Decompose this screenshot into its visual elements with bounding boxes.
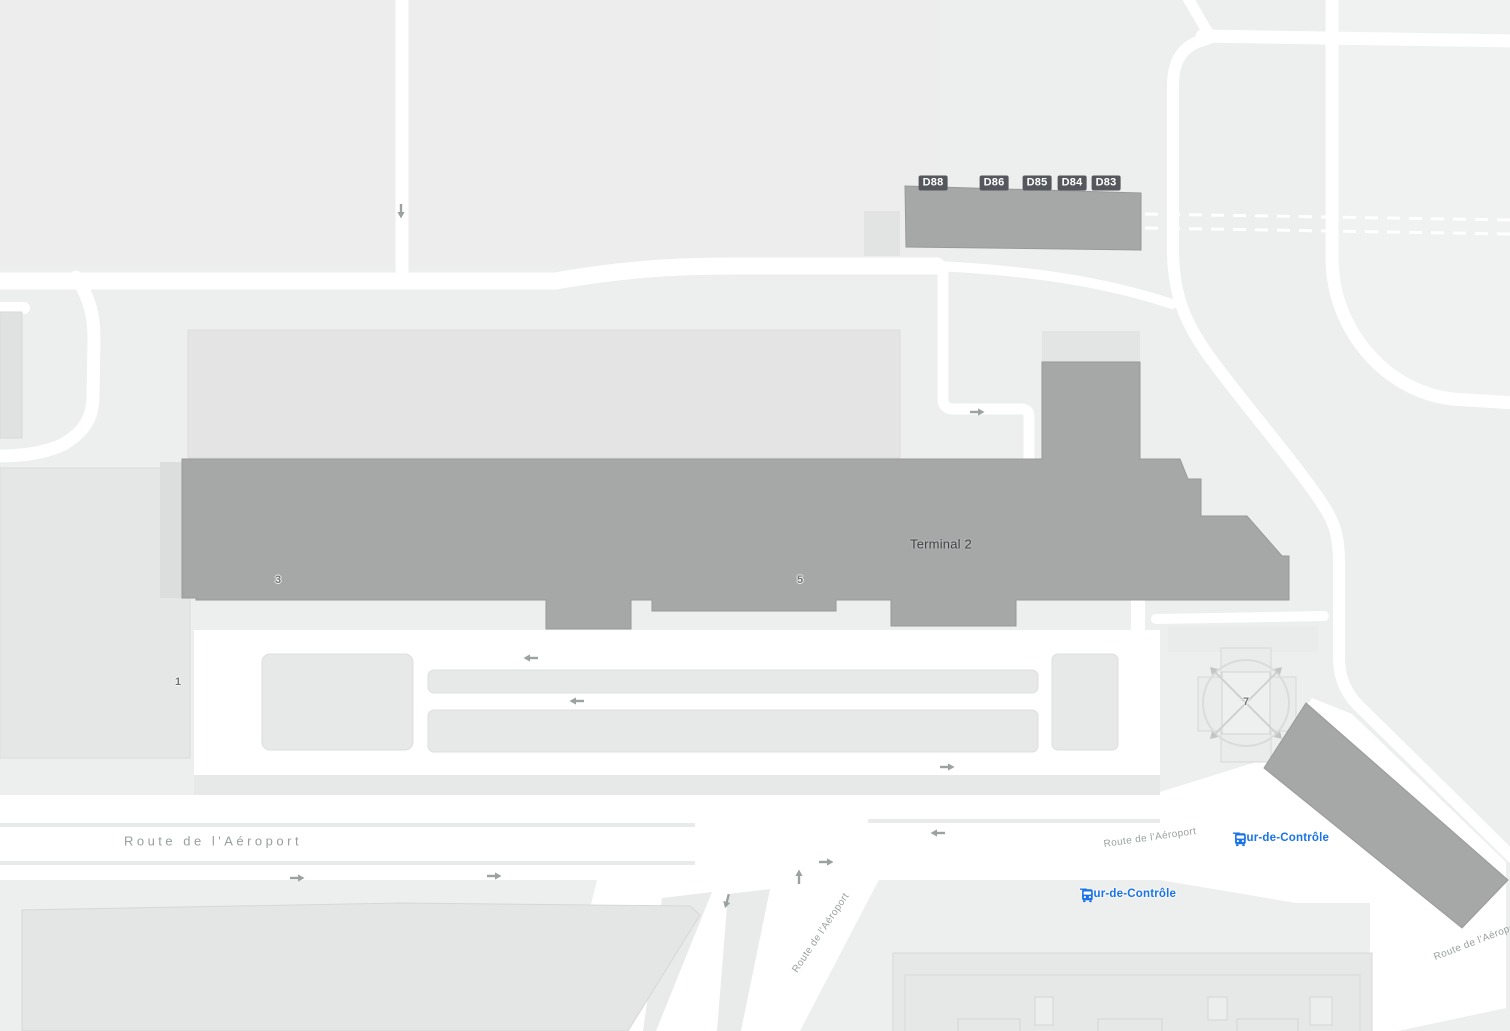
gate-label-d84[interactable]: D84 <box>1058 176 1087 191</box>
gate-label-d85[interactable]: D85 <box>1023 176 1052 191</box>
transit-stop-tour-de-controle-2[interactable]: Tour-de-Contrôle <box>1080 888 1176 917</box>
bottom-right-building <box>893 953 1372 1031</box>
building-number-1: 1 <box>175 676 181 688</box>
airport-map-viewport: D88 D86 D85 D84 D83 Terminal 2 1 3 5 7 R… <box>0 0 1510 1031</box>
terminal-2-label[interactable]: Terminal 2 <box>910 537 972 552</box>
gate-label-d88[interactable]: D88 <box>919 176 948 191</box>
map-canvas[interactable] <box>0 0 1510 1031</box>
gate-label-d83[interactable]: D83 <box>1092 176 1121 191</box>
gates-building <box>905 186 1141 250</box>
bus-icon[interactable] <box>1121 902 1136 917</box>
building-number-7: 7 <box>1243 696 1249 708</box>
building-number-5: 5 <box>797 574 803 586</box>
transit-stop-tour-de-controle-1[interactable]: Tour-de-Contrôle <box>1233 832 1329 861</box>
bus-icon[interactable] <box>1274 846 1289 861</box>
road-label-route-de-l-aeroport: Route de l'Aéroport <box>124 834 302 849</box>
gate-label-d86[interactable]: D86 <box>980 176 1009 191</box>
building-number-3: 3 <box>275 574 281 586</box>
